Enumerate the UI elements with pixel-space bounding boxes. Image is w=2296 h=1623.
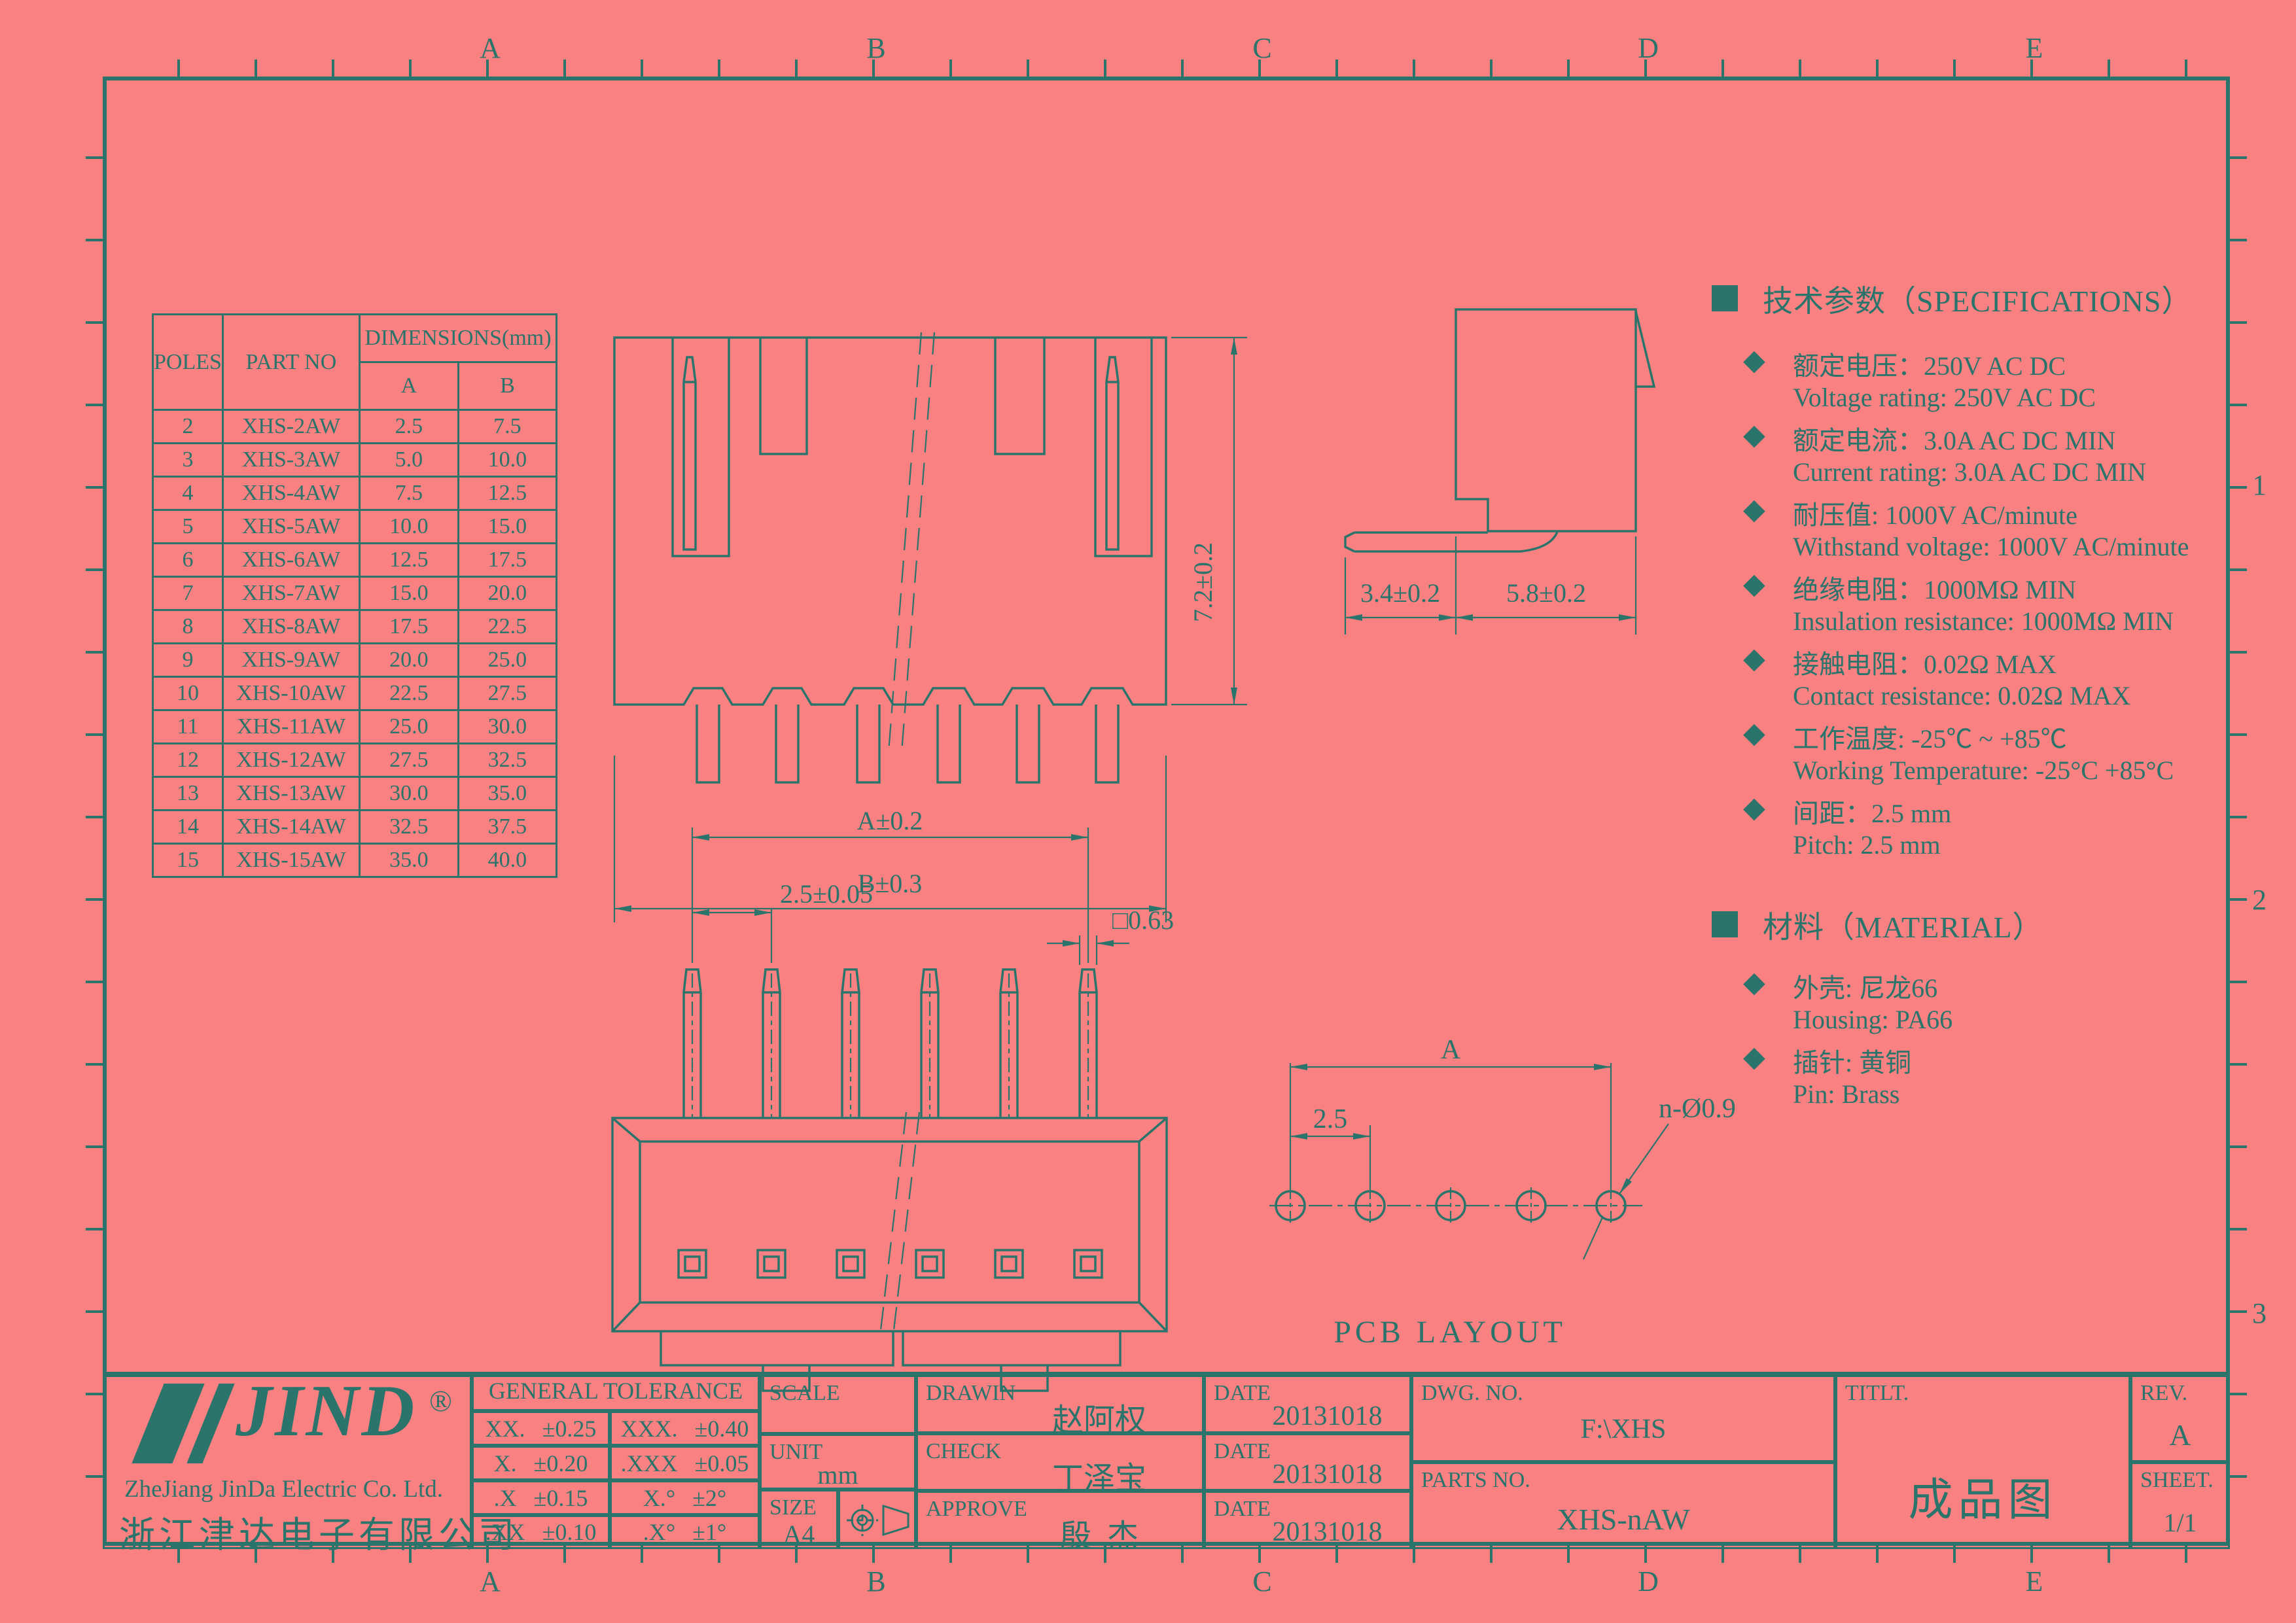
housing-inner [640,1142,1139,1302]
pcb-layout-drawing: A 2.5 n-Ø0.9 PCB LAYOUT [1276,1021,1734,1374]
foot-pin [1096,705,1118,782]
tol-value: ±0.15 [534,1484,588,1512]
tol-label: .X [494,1484,517,1512]
pin-view-drawing: A±0.2 2.5±0.05 □0.63 [589,805,1191,1393]
drawin-cell: DRAWIN 赵阿权 [916,1375,1204,1433]
col-header-poles: POLES [153,315,223,410]
title-block: JIND ® ZheJiang JinDa Electric Co. Ltd. … [103,1372,2230,1546]
size-label: SIZE [769,1495,817,1520]
cell-b: 35.0 [458,777,556,811]
rev-value: A [2132,1418,2228,1452]
hole [837,1250,864,1278]
material-en: Housing: PA66 [1793,1004,1952,1035]
date-cell: DATE 20131018 [1204,1491,1411,1549]
tol-label: .X° [643,1518,675,1546]
rev-label: REV. [2140,1381,2187,1406]
hole [1074,1250,1102,1278]
col-header-partno: PART NO [222,315,359,410]
section-bullet-square [1712,911,1738,937]
cell-a: 35.0 [359,844,458,877]
table-row: 2XHS-2AW2.57.5 [153,410,557,444]
specifications-title: 技术参数（SPECIFICATIONS） [1763,277,2192,321]
cell-b: 40.0 [458,844,556,877]
spec-en: Current rating: 3.0A AC DC MIN [1793,457,2146,487]
break-line [889,332,921,752]
zone-letter-bottom: D [1634,1565,1663,1598]
notch-right [995,338,1044,454]
dim-label-pitch: 2.5±0.05 [780,879,873,909]
tol-label: X.° [643,1484,675,1512]
tolerance-cell: XXX.±0.40 [610,1411,760,1446]
cell-a: 7.5 [359,477,458,510]
tolerance-cell: XX.±0.25 [472,1411,610,1446]
tolerance-cell: .XX±0.10 [472,1515,610,1549]
logo-text: JIND [236,1369,417,1454]
dim-label-58: 5.8±0.2 [1506,578,1586,608]
dwg-no-label: DWG. NO. [1421,1381,1523,1406]
cell-poles: 6 [153,544,223,577]
zone-letter-top: C [1248,31,1277,65]
hole [679,1250,706,1278]
foot-pin [1017,705,1039,782]
foot-pin [697,705,719,782]
bevel [612,1118,1167,1331]
slot-pin-right [1106,357,1118,550]
table-row: 5XHS-5AW10.015.0 [153,510,557,544]
table-row: 12XHS-12AW27.532.5 [153,744,557,777]
cell-b: 30.0 [458,710,556,744]
dwg-no-cell: DWG. NO. F:\XHS [1411,1375,1835,1462]
parts-no-cell: PARTS NO. XHS-nAW [1411,1462,1835,1549]
cell-poles: 8 [153,610,223,644]
cell-part: XHS-8AW [222,610,359,644]
diamond-bullet: ◆ [1743,1040,1765,1073]
cell-part: XHS-9AW [222,644,359,677]
body-outline [1456,309,1636,531]
dim-label-pitch: 2.5 [1313,1104,1348,1134]
zone-number-right: 3 [2252,1297,2267,1330]
tol-label: XX. [486,1415,525,1442]
cell-poles: 2 [153,410,223,444]
tolerance-cell: X.°±2° [610,1480,760,1515]
check-label: CHECK [926,1439,1001,1464]
tol-value: ±1° [692,1518,726,1546]
tolerance-cell: X.±0.20 [472,1446,610,1480]
sheet-value: 1/1 [2132,1507,2228,1538]
sheet-label: SHEET. [2140,1468,2214,1493]
zone-letter-top: D [1634,31,1663,65]
spec-en: Working Temperature: -25°C +85°C [1793,755,2174,786]
cell-part: XHS-7AW [222,577,359,610]
pcb-layout-caption: PCB LAYOUT [1333,1315,1566,1350]
cell-a: 20.0 [359,644,458,677]
tolerance-title: GENERAL TOLERANCE [489,1378,743,1404]
size-cell: SIZE A4 [760,1490,838,1549]
dim-extension [1171,338,1247,705]
diamond-bullet: ◆ [1743,791,1765,824]
spec-zh: 耐压值: 1000V AC/minute [1793,494,2077,532]
cell-part: XHS-14AW [222,811,359,844]
tol-value: ±0.25 [542,1415,597,1442]
table-row: 4XHS-4AW7.512.5 [153,477,557,510]
housing-outer [612,1118,1167,1331]
slot-left [673,338,729,556]
col-header-dimensions: DIMENSIONS(mm) [359,315,556,362]
hole [995,1250,1023,1278]
hole-callout-label: n-Ø0.9 [1659,1094,1736,1124]
zone-letter-bottom: A [476,1565,504,1598]
table-row: 13XHS-13AW30.035.0 [153,777,557,811]
cell-poles: 11 [153,710,223,744]
drawing-title: 成品图 [1837,1463,2128,1528]
cell-b: 27.5 [458,677,556,710]
tol-label: X. [494,1450,517,1477]
cell-part: XHS-2AW [222,410,359,444]
title-label: TITLT. [1845,1381,1909,1406]
cell-part: XHS-4AW [222,477,359,510]
spec-zh: 间距：2.5 mm [1793,792,1951,830]
check-cell: CHECK 丁泽宝 [916,1433,1204,1491]
slot-right [1095,338,1152,556]
cell-part: XHS-10AW [222,677,359,710]
zone-letter-bottom: B [862,1565,891,1598]
diamond-bullet: ◆ [1743,567,1765,601]
cell-poles: 12 [153,744,223,777]
cell-poles: 4 [153,477,223,510]
cell-a: 12.5 [359,544,458,577]
cell-a: 2.5 [359,410,458,444]
dim-label-72: 7.2±0.2 [1188,542,1218,622]
diamond-bullet: ◆ [1743,343,1765,377]
cell-poles: 13 [153,777,223,811]
tol-value: ±0.05 [695,1450,749,1477]
cell-b: 15.0 [458,510,556,544]
material-zh: 插针: 黄铜 [1793,1041,1911,1079]
spec-en: Insulation resistance: 1000MΩ MIN [1793,606,2174,637]
cell-b: 25.0 [458,644,556,677]
rev-cell: REV. A [2130,1375,2230,1462]
tol-value: ±2° [692,1484,726,1512]
tolerance-cell: .X±0.15 [472,1480,610,1515]
slot-pin-left [684,357,696,550]
leader-line [1619,1124,1669,1194]
spec-zh: 绝缘电阻：1000MΩ MIN [1793,568,2076,606]
cell-b: 37.5 [458,811,556,844]
material-en: Pin: Brass [1793,1079,1899,1109]
tol-value: ±0.40 [695,1415,749,1442]
registered-mark: ® [429,1384,452,1418]
cell-b: 7.5 [458,410,556,444]
date-value: 20131018 [1245,1516,1409,1548]
diamond-bullet: ◆ [1743,716,1765,750]
spec-en: Contact resistance: 0.02Ω MAX [1793,680,2130,711]
spec-en: Withstand voltage: 1000V AC/minute [1793,531,2189,562]
col-header-b: B [458,362,556,410]
dim-label-square: □0.63 [1112,905,1174,935]
cell-part: XHS-3AW [222,444,359,477]
cell-b: 17.5 [458,544,556,577]
table-row: 9XHS-9AW20.025.0 [153,644,557,677]
scale-label: SCALE [769,1381,840,1406]
table-row: 10XHS-10AW22.527.5 [153,677,557,710]
zone-letter-top: E [2020,31,2049,65]
approve-name: 殷 杰 [997,1510,1202,1556]
company-name-zh: 浙江津达电子有限公司 [119,1505,518,1558]
section-bullet-square [1712,285,1738,311]
cell-a: 15.0 [359,577,458,610]
table-row: 14XHS-14AW32.537.5 [153,811,557,844]
ruler-right [2230,77,2247,1546]
diamond-bullet: ◆ [1743,642,1765,675]
spec-en: Voltage rating: 250V AC DC [1793,382,2096,413]
bottom-lip [661,1331,1120,1365]
cell-b: 32.5 [458,744,556,777]
leader-line [1583,1217,1602,1259]
zone-letter-bottom: C [1248,1565,1277,1598]
cell-poles: 14 [153,811,223,844]
date-value: 20131018 [1245,1401,1409,1432]
spec-zh: 接触电阻：0.02Ω MAX [1793,643,2057,681]
cell-a: 32.5 [359,811,458,844]
zone-letter-bottom: E [2020,1565,2049,1598]
side-view-drawing: 3.4±0.2 5.8±0.2 [1328,288,1682,654]
cell-poles: 5 [153,510,223,544]
table-row: 15XHS-15AW35.040.0 [153,844,557,877]
cell-a: 5.0 [359,444,458,477]
tol-label: .XXX [621,1450,678,1477]
date-cell: DATE 20131018 [1204,1375,1411,1433]
cell-b: 20.0 [458,577,556,610]
tol-label: .XX [486,1518,525,1546]
cell-part: XHS-13AW [222,777,359,811]
cell-a: 17.5 [359,610,458,644]
company-name-en: ZheJiang JinDa Electric Co. Ltd. [124,1475,443,1503]
cell-part: XHS-15AW [222,844,359,877]
zone-number-right: 1 [2252,468,2267,502]
title-cell: TITLT. 成品图 [1835,1375,2130,1549]
diamond-bullet: ◆ [1743,418,1765,451]
tol-value: ±0.10 [542,1518,597,1546]
third-angle-projection-icon [843,1494,915,1546]
pin-centerline [692,973,1088,1118]
table-row: 6XHS-6AW12.517.5 [153,544,557,577]
dim-extension [692,828,1088,963]
date-value: 20131018 [1245,1459,1409,1490]
hole [916,1250,944,1278]
cell-b: 12.5 [458,477,556,510]
cell-poles: 10 [153,677,223,710]
cell-poles: 7 [153,577,223,610]
dim-label-34: 3.4±0.2 [1360,578,1440,608]
diamond-bullet: ◆ [1743,966,1765,999]
tolerance-header: GENERAL TOLERANCE [472,1375,760,1411]
cell-a: 30.0 [359,777,458,811]
spec-zh: 额定电流：3.0A AC DC MIN [1793,419,2115,457]
spec-en: Pitch: 2.5 mm [1793,829,1941,860]
cell-a: 27.5 [359,744,458,777]
cell-poles: 9 [153,644,223,677]
cell-b: 10.0 [458,444,556,477]
unit-value: mm [762,1459,914,1490]
hole [758,1250,785,1278]
spec-zh: 额定电压：250V AC DC [1793,345,2066,383]
dim-label-A: A±0.2 [857,806,923,835]
tolerance-cell: .XXX±0.05 [610,1446,760,1480]
col-header-a: A [359,362,458,410]
table-row: 8XHS-8AW17.522.5 [153,610,557,644]
ruler-top [103,60,2230,77]
cell-part: XHS-12AW [222,744,359,777]
poles-dimension-table: POLES PART NO DIMENSIONS(mm) A B 2XHS-2A… [152,313,557,878]
dwg-no-value: F:\XHS [1413,1414,1833,1445]
approve-cell: APPROVE 殷 杰 [916,1491,1204,1549]
zone-letter-top: A [476,31,504,65]
size-value: A4 [762,1519,836,1550]
cell-a: 25.0 [359,710,458,744]
material-title: 材料（MATERIAL） [1763,903,2043,947]
cell-a: 10.0 [359,510,458,544]
cell-part: XHS-5AW [222,510,359,544]
ruler-left [86,77,103,1546]
material-zh: 外壳: 尼龙66 [1793,967,1937,1005]
parts-no-value: XHS-nAW [1413,1502,1833,1537]
parts-no-label: PARTS NO. [1421,1468,1530,1493]
sheet-cell: SHEET. 1/1 [2130,1462,2230,1549]
foot-pin [776,705,798,782]
cell-part: XHS-11AW [222,710,359,744]
table-row: 3XHS-3AW5.010.0 [153,444,557,477]
tolerance-cell: .X°±1° [610,1515,760,1549]
engineering-drawing-sheet: A B C D E A B C D E 1 2 3 POLES PART NO … [0,0,2296,1623]
break-line [902,332,934,752]
latch [1636,311,1654,387]
unit-cell: UNIT mm [760,1434,916,1490]
projection-symbol-cell [838,1490,916,1549]
table-row: 11XHS-11AW25.030.0 [153,710,557,744]
cell-b: 22.5 [458,610,556,644]
bent-pin [1345,532,1557,551]
foot-pin [938,705,960,782]
cell-poles: 15 [153,844,223,877]
date-cell: DATE 20131018 [1204,1433,1411,1491]
cell-a: 22.5 [359,677,458,710]
notch-left [760,338,807,454]
tol-label: XXX. [621,1415,678,1442]
table-row: 7XHS-7AW15.020.0 [153,577,557,610]
diamond-bullet: ◆ [1743,493,1765,526]
housing-outline [614,338,1166,705]
cell-poles: 3 [153,444,223,477]
scale-cell: SCALE [760,1375,916,1434]
dim-label-A: A [1441,1035,1461,1065]
spec-zh: 工作温度: -25℃ ~ +85℃ [1793,718,2067,756]
zone-number-right: 2 [2252,883,2267,916]
company-logo-cell: JIND ® ZheJiang JinDa Electric Co. Ltd. … [103,1375,472,1549]
tol-value: ±0.20 [534,1450,588,1477]
cell-part: XHS-6AW [222,544,359,577]
zone-letter-top: B [862,31,891,65]
foot-pin [857,705,879,782]
